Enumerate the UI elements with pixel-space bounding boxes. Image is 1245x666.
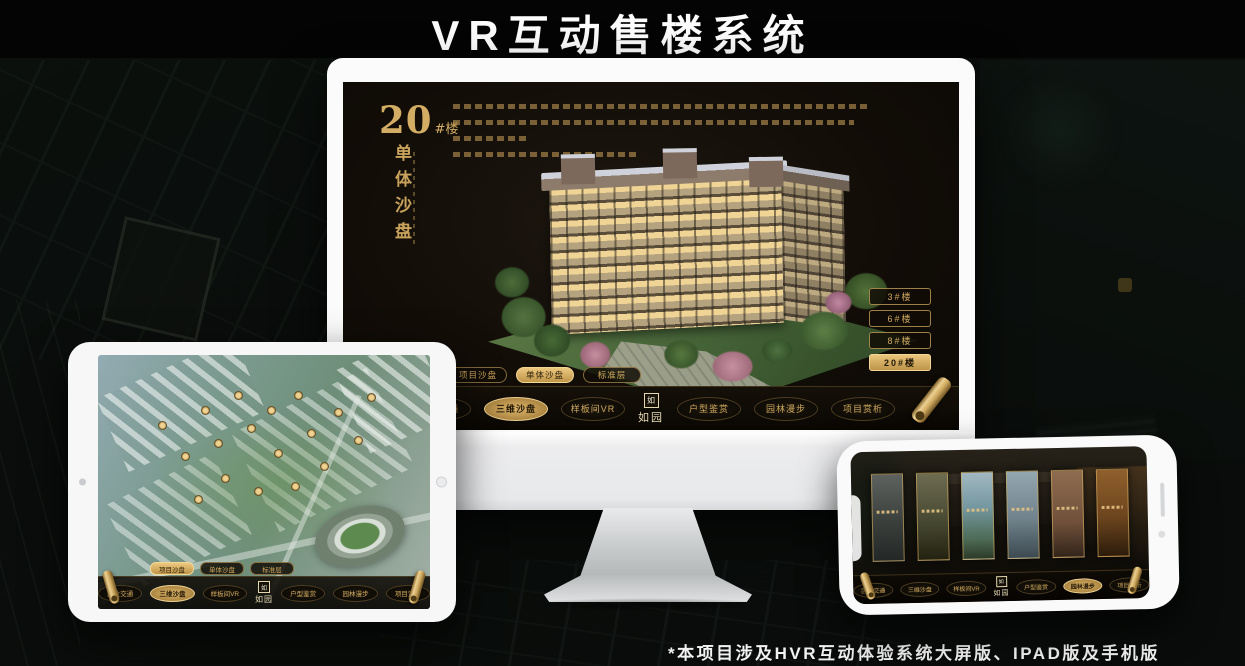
monitor-stand [518, 508, 778, 602]
building-selector: 3#楼 6#楼 8#楼 20#楼 [869, 288, 931, 371]
page-title: VR互动售楼系统 [0, 2, 1245, 63]
tablet-camera-icon [79, 479, 86, 486]
building-badge [201, 406, 210, 415]
panel-caption [922, 509, 943, 512]
panel-caption [1012, 508, 1033, 511]
tablet-bottom-bar: 项目沙盘 单体沙盘 标准层 区位交通 三维沙盘 样板间VR 如 如园 户型鉴赏 … [98, 557, 430, 609]
nav-item-3d-sandtable[interactable]: 三维沙盘 [900, 581, 940, 597]
main-navigation-bar: 区位交通 三维沙盘 样板间VR 如 如园 户型鉴赏 园林漫步 项目赏析 [98, 576, 430, 609]
nav-item-floorplan-gallery[interactable]: 户型鉴赏 [281, 585, 325, 602]
tablet-device: 项目沙盘 单体沙盘 标准层 区位交通 三维沙盘 样板间VR 如 如园 户型鉴赏 … [68, 342, 456, 622]
nav-item-3d-sandtable-active[interactable]: 三维沙盘 [484, 397, 548, 421]
building-button-3[interactable]: 3#楼 [869, 288, 931, 305]
ruyuan-logo-text: 如园 [993, 588, 1009, 598]
panel-caption [967, 509, 988, 512]
nav-item-showroom-vr[interactable]: 样板间VR [561, 397, 625, 421]
footnote-text: *本项目涉及HVR互动体验系统大屏版、IPAD版及手机版 [668, 639, 1160, 664]
building-heading: 20#楼 [379, 98, 458, 142]
panel-caption [1102, 506, 1123, 509]
phone-device: 区位交通 三维沙盘 样板间VR 如 如园 户型鉴赏 园林漫步 项目赏析 [836, 434, 1180, 615]
gallery-panel-4[interactable] [1005, 470, 1039, 559]
model-dormer [663, 148, 698, 179]
gallery-panel-1[interactable] [870, 473, 904, 562]
gallery-panel-6[interactable] [1095, 468, 1129, 557]
monitor-stand-shadow [520, 598, 776, 612]
nav-item-floorplan-gallery[interactable]: 户型鉴赏 [677, 397, 741, 421]
ruyuan-logo: 如 如园 [255, 581, 273, 605]
poster-canvas: VR互动售楼系统 *本项目涉及HVR互动体验系统大屏版、IPAD版及手机版 20… [0, 0, 1245, 666]
phone-camera-icon [1158, 531, 1165, 538]
ruyuan-logo-text: 如园 [638, 409, 664, 425]
ruyuan-seal-icon: 如 [644, 393, 659, 408]
nav-item-garden-walk[interactable]: 园林漫步 [333, 585, 377, 602]
background-photo [980, 60, 1245, 460]
phone-speaker-grille-icon [1160, 483, 1165, 517]
nav-item-showroom-vr[interactable]: 样板间VR [946, 580, 986, 596]
building-badge [367, 393, 376, 402]
ruyuan-logo-text: 如园 [255, 594, 273, 605]
building-badge [294, 391, 303, 400]
ruyuan-seal-icon: 如 [996, 576, 1007, 587]
nav-item-floorplan-gallery[interactable]: 户型鉴赏 [1016, 579, 1056, 595]
sub-tab-standard-floor[interactable]: 标准层 [583, 367, 641, 383]
building-badge [214, 439, 223, 448]
gallery-panel-5[interactable] [1050, 469, 1084, 558]
building-badge [234, 391, 243, 400]
building-badge [181, 452, 190, 461]
building-badge [334, 408, 343, 417]
section-title-vertical: 单体沙盘 [389, 144, 414, 248]
ruyuan-logo: 如 如园 [993, 576, 1009, 598]
ruyuan-seal-icon: 如 [258, 581, 270, 593]
phone-screen: 区位交通 三维沙盘 样板间VR 如 如园 户型鉴赏 园林漫步 项目赏析 [850, 446, 1149, 604]
building-button-20-active[interactable]: 20#楼 [869, 354, 931, 371]
model-dormer [561, 154, 596, 185]
nav-item-3d-sandtable-active[interactable]: 三维沙盘 [150, 585, 194, 602]
background-river-glow [1000, 70, 1120, 190]
sub-tab-single-sandtable-active[interactable]: 单体沙盘 [516, 367, 574, 383]
nav-item-garden-walk[interactable]: 园林漫步 [754, 397, 818, 421]
sandtable-sub-tabs: 项目沙盘 单体沙盘 标准层 [449, 367, 641, 383]
building-badge [354, 436, 363, 445]
sub-tab-project-sandtable[interactable]: 项目沙盘 [449, 367, 507, 383]
building-badge [274, 449, 283, 458]
tablet-home-button[interactable] [436, 477, 447, 488]
tree-foliage [495, 267, 530, 298]
model-building-front-facade [549, 175, 783, 335]
main-navigation-bar: 区位交通 三维沙盘 样板间VR 如 如园 户型鉴赏 园林漫步 项目赏析 [853, 569, 1150, 604]
paragraph-line [453, 136, 528, 141]
sandtable-sub-tabs: 项目沙盘 单体沙盘 标准层 [150, 562, 294, 575]
tablet-screen: 项目沙盘 单体沙盘 标准层 区位交通 三维沙盘 样板间VR 如 如园 户型鉴赏 … [98, 355, 430, 609]
building-badge [158, 421, 167, 430]
gallery-panel-3[interactable] [960, 471, 994, 560]
background-logo-mark [1118, 278, 1132, 292]
flower-shrub [825, 291, 851, 313]
ruyuan-logo: 如 如园 [638, 393, 664, 425]
model-dormer [749, 157, 784, 188]
building-badge [307, 429, 316, 438]
panel-caption [1057, 507, 1078, 510]
building-badge [291, 482, 300, 491]
building-button-6[interactable]: 6#楼 [869, 310, 931, 327]
gallery-panel-2[interactable] [915, 472, 949, 561]
sub-tab-project-sandtable-active[interactable]: 项目沙盘 [150, 562, 194, 575]
nav-item-location-traffic[interactable]: 区位交通 [98, 585, 142, 602]
paragraph-line [453, 120, 854, 125]
building-button-8[interactable]: 8#楼 [869, 332, 931, 349]
vertical-english-caption [413, 152, 415, 248]
nav-item-showroom-vr[interactable]: 样板间VR [203, 585, 247, 602]
sub-tab-single-sandtable[interactable]: 单体沙盘 [200, 562, 244, 575]
panel-caption [877, 510, 898, 513]
building-badge [247, 424, 256, 433]
nav-item-project-showcase[interactable]: 项目赏析 [831, 397, 895, 421]
sub-tab-standard-floor[interactable]: 标准层 [250, 562, 294, 575]
building-number: 20 [379, 98, 433, 142]
background-plaque [101, 216, 220, 341]
paragraph-line [453, 104, 871, 109]
scene-gallery [851, 468, 1149, 562]
building-badge [194, 495, 203, 504]
nav-item-garden-walk-active[interactable]: 园林漫步 [1063, 578, 1103, 594]
phone-notch [851, 495, 861, 561]
